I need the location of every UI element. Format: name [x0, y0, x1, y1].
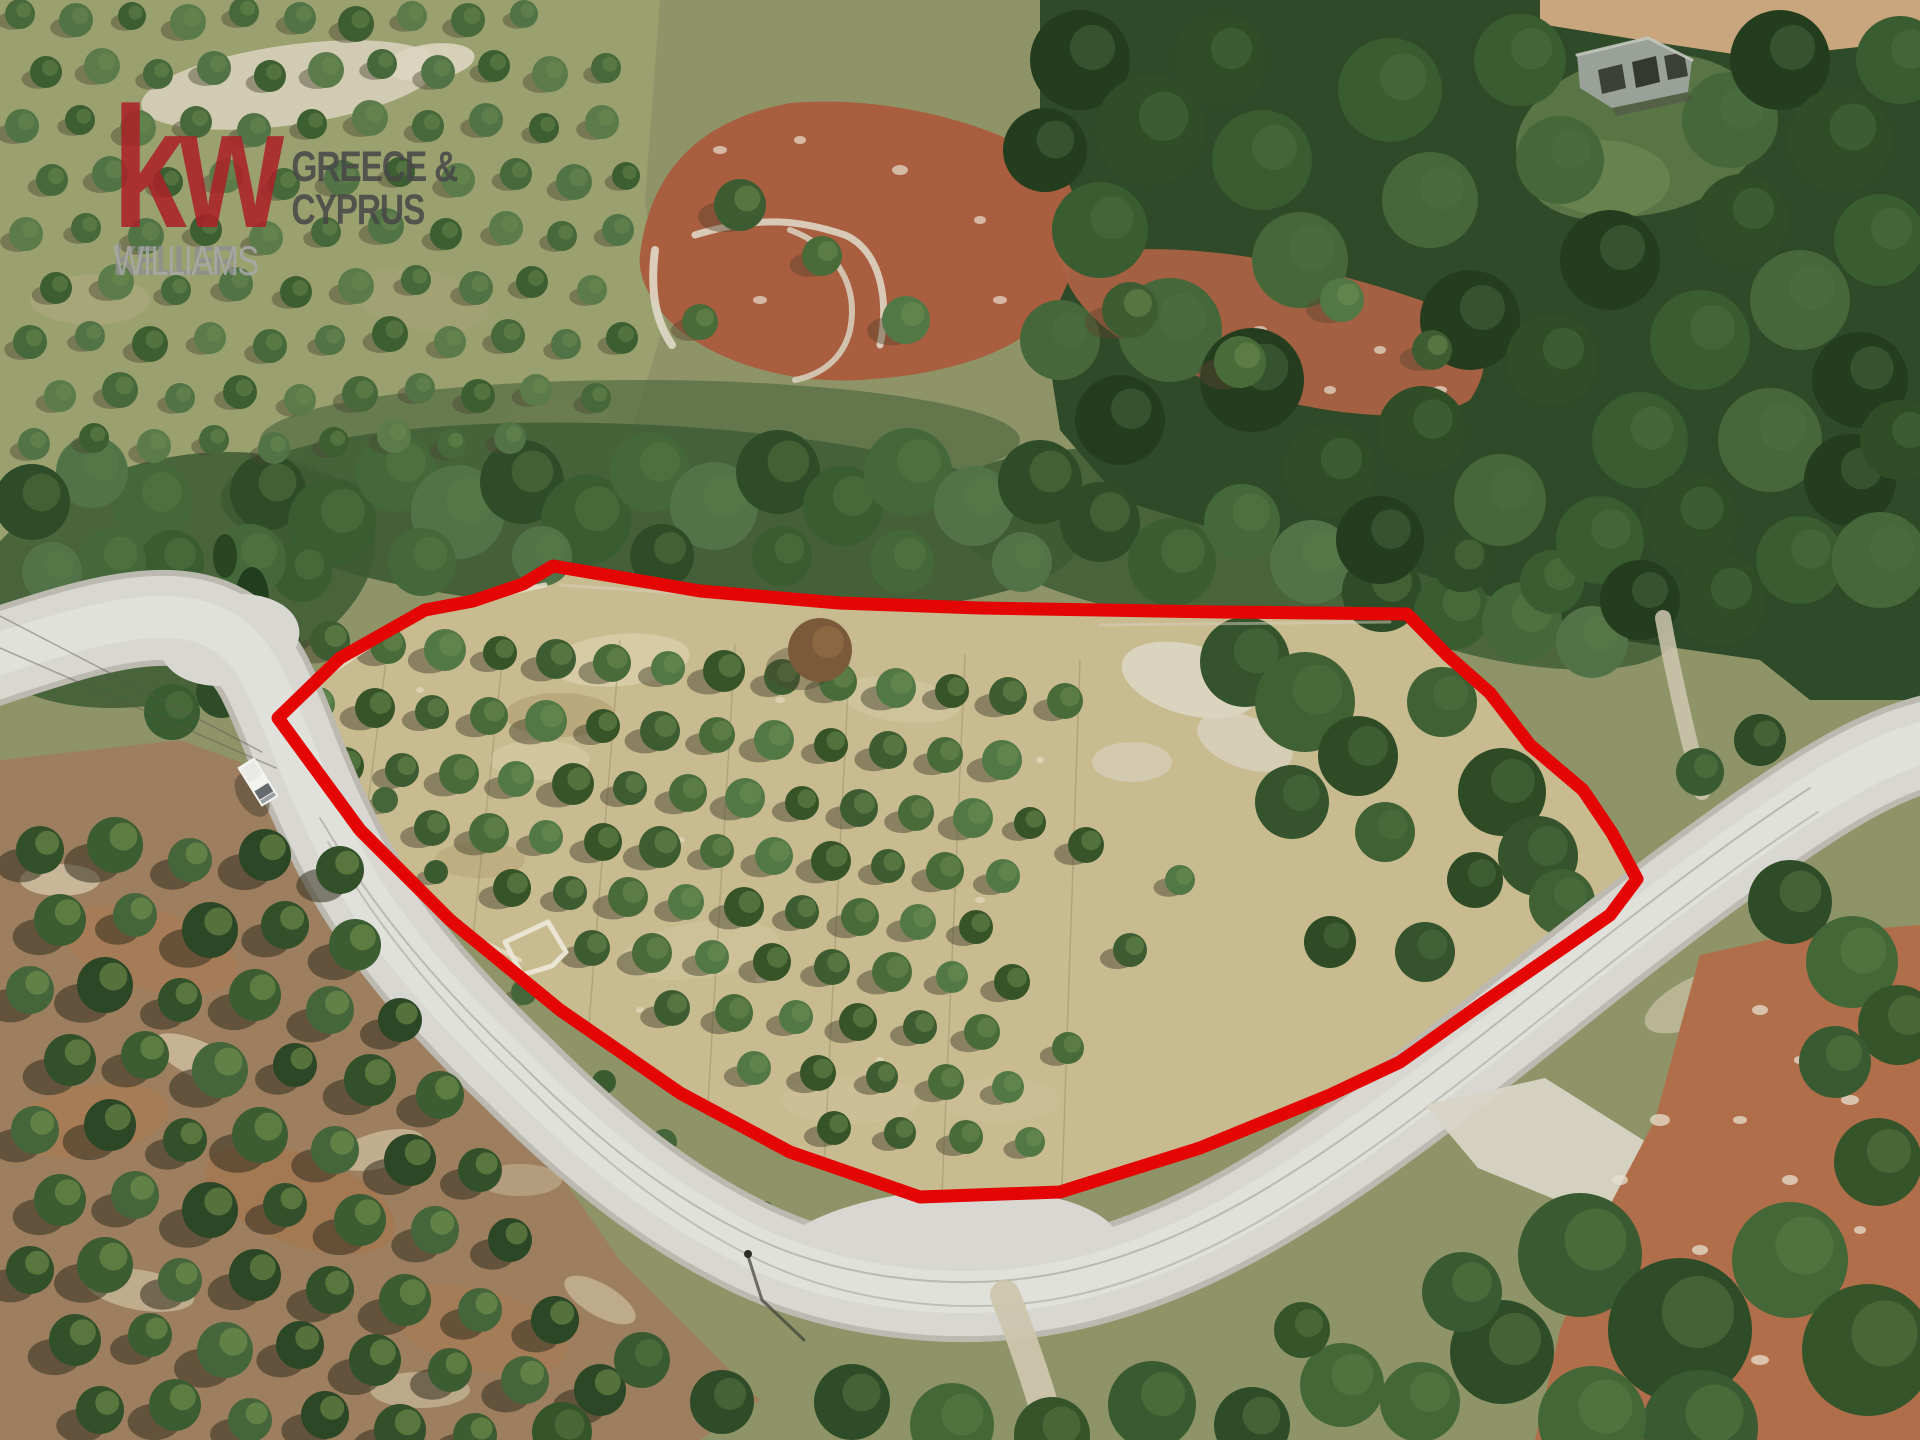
aerial-photo: kw GREECE & CYPRUS KELLERWILLIAMS®	[0, 0, 1920, 1440]
terrain-canvas	[0, 0, 1920, 1440]
